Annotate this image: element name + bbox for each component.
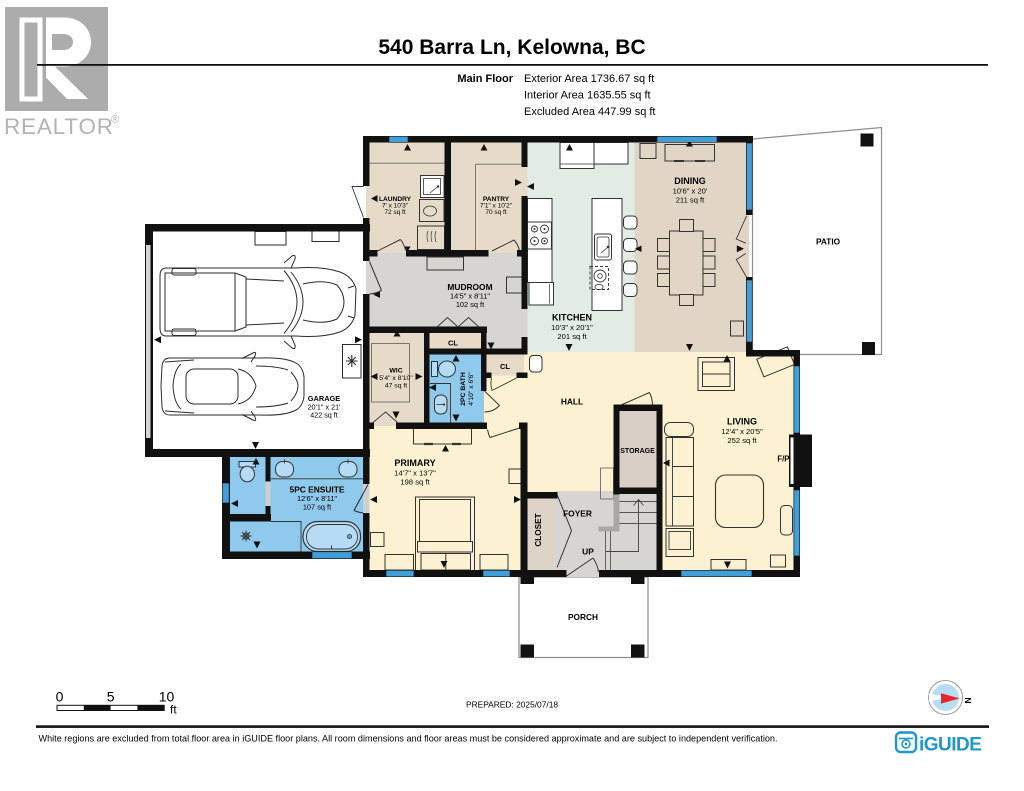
svg-text:201 sq ft: 201 sq ft — [557, 332, 587, 341]
svg-text:iGUIDE: iGUIDE — [919, 735, 981, 756]
svg-text:252 sq ft: 252 sq ft — [727, 436, 757, 445]
svg-text:WIC: WIC — [389, 368, 402, 375]
svg-text:CL: CL — [500, 362, 510, 371]
svg-text:107 sq ft: 107 sq ft — [303, 503, 331, 512]
svg-text:Interior Area 1635.55 sq ft: Interior Area 1635.55 sq ft — [524, 90, 651, 102]
svg-text:PREPARED: 2025/07/18: PREPARED: 2025/07/18 — [466, 700, 558, 710]
svg-text:KITCHEN: KITCHEN — [552, 313, 592, 323]
svg-text:STORAGE: STORAGE — [620, 448, 655, 455]
svg-text:10'3" x 20'1": 10'3" x 20'1" — [551, 323, 593, 332]
svg-text:F/P: F/P — [777, 455, 789, 464]
svg-text:70 sq ft: 70 sq ft — [485, 209, 507, 216]
svg-text:422 sq ft: 422 sq ft — [310, 411, 338, 420]
svg-text:White regions are excluded fro: White regions are excluded from total fl… — [39, 734, 778, 744]
svg-text:N: N — [963, 697, 973, 703]
svg-text:Main Floor: Main Floor — [457, 73, 513, 85]
svg-text:LIVING: LIVING — [727, 417, 757, 427]
svg-text:10'6" x 20': 10'6" x 20' — [673, 187, 708, 196]
svg-text:CL: CL — [448, 339, 458, 348]
svg-text:540 Barra Ln, Kelowna, BC: 540 Barra Ln, Kelowna, BC — [378, 36, 645, 59]
svg-text:PORCH: PORCH — [568, 612, 598, 622]
svg-text:47 sq ft: 47 sq ft — [385, 383, 407, 390]
svg-text:HALL: HALL — [561, 397, 583, 407]
svg-text:211 sq ft: 211 sq ft — [676, 196, 705, 205]
svg-text:4'10" x 6'6": 4'10" x 6'6" — [468, 372, 475, 406]
svg-text:PATIO: PATIO — [816, 237, 841, 247]
svg-text:5: 5 — [107, 689, 115, 705]
svg-text:CLOSET: CLOSET — [534, 513, 543, 546]
svg-text:5PC ENSUITE: 5PC ENSUITE — [290, 485, 345, 495]
svg-text:72 sq ft: 72 sq ft — [384, 209, 406, 216]
svg-text:12'4" x 20'5": 12'4" x 20'5" — [721, 427, 763, 436]
svg-text:MUDROOM: MUDROOM — [447, 282, 492, 292]
svg-text:UP: UP — [582, 547, 594, 557]
svg-text:14'7" x 13'7": 14'7" x 13'7" — [394, 469, 436, 478]
svg-text:REALTOR: REALTOR — [4, 114, 114, 139]
svg-text:FOYER: FOYER — [563, 509, 592, 519]
svg-text:5'4" x 8'10": 5'4" x 8'10" — [379, 375, 413, 382]
svg-text:®: ® — [111, 114, 119, 126]
svg-text:DINING: DINING — [674, 176, 706, 186]
svg-text:102 sq ft: 102 sq ft — [456, 300, 484, 309]
svg-text:Exterior Area 1736.67 sq ft: Exterior Area 1736.67 sq ft — [524, 73, 654, 85]
svg-text:2PC BATH: 2PC BATH — [460, 372, 467, 406]
svg-text:PRIMARY: PRIMARY — [394, 458, 435, 468]
svg-text:ft: ft — [170, 703, 177, 717]
svg-text:Excluded Area 447.99 sq ft: Excluded Area 447.99 sq ft — [524, 106, 655, 118]
svg-text:0: 0 — [56, 689, 64, 705]
svg-text:198 sq ft: 198 sq ft — [400, 478, 430, 487]
